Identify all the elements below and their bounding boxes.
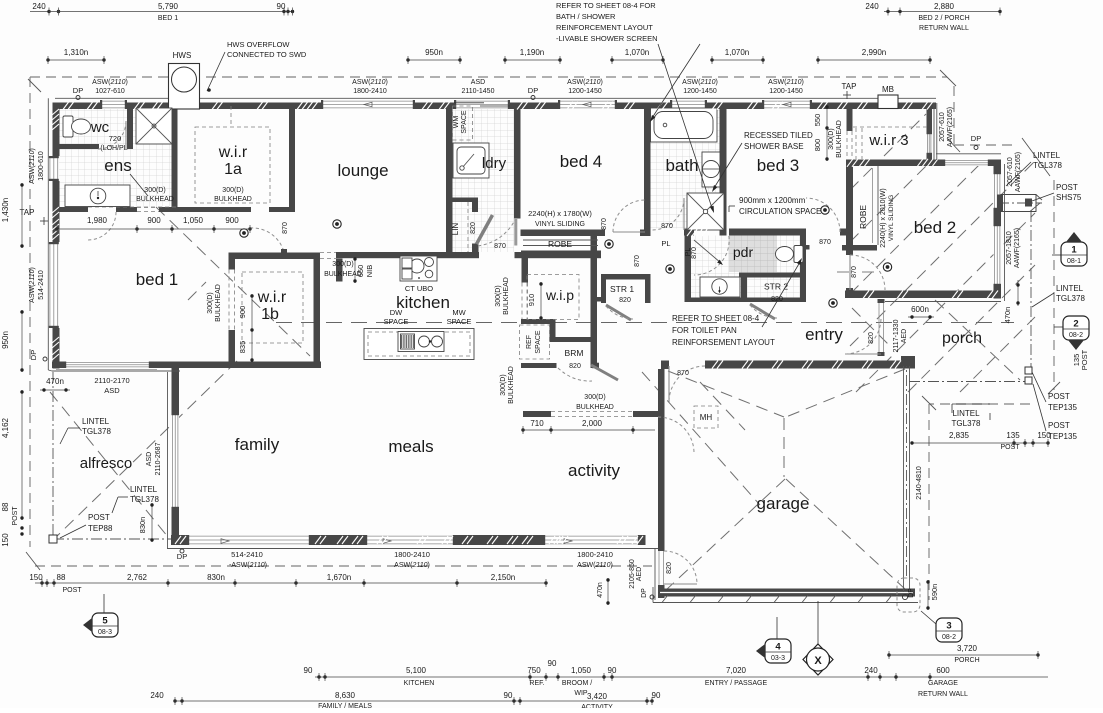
svg-text:AAWF(2165): AAWF(2165) xyxy=(1014,228,1021,268)
svg-text:590n: 590n xyxy=(930,584,939,601)
svg-text:820: 820 xyxy=(666,562,673,574)
svg-text:240: 240 xyxy=(150,691,164,700)
svg-text:REINFORSEMENT LAYOUT: REINFORSEMENT LAYOUT xyxy=(672,338,775,347)
svg-text:w.i.r: w.i.r xyxy=(218,144,248,161)
svg-text:830n: 830n xyxy=(207,573,225,582)
svg-text:LINTEL: LINTEL xyxy=(952,409,980,418)
svg-text:2,000: 2,000 xyxy=(582,419,603,428)
svg-text:LINTEL: LINTEL xyxy=(1056,284,1084,293)
svg-text:1a: 1a xyxy=(224,161,242,178)
svg-text:2,835: 2,835 xyxy=(949,431,970,440)
svg-text:CIRCULATION SPACE: CIRCULATION SPACE xyxy=(739,207,821,216)
svg-text:DP: DP xyxy=(73,86,83,95)
svg-text:820: 820 xyxy=(868,332,875,344)
svg-text:ASD: ASD xyxy=(471,79,485,86)
svg-text:DP: DP xyxy=(528,86,538,95)
svg-text:3: 3 xyxy=(946,621,951,632)
svg-text:300(D): 300(D) xyxy=(144,187,165,194)
svg-text:470n: 470n xyxy=(46,377,64,386)
svg-text:950n: 950n xyxy=(425,48,443,57)
svg-text:2110-2170: 2110-2170 xyxy=(94,376,129,385)
svg-text:2110-1450: 2110-1450 xyxy=(462,88,495,95)
svg-text:BED 2 / PORCH: BED 2 / PORCH xyxy=(918,15,969,22)
svg-text:BATH / SHOWER: BATH / SHOWER xyxy=(556,12,616,21)
svg-text:150: 150 xyxy=(1037,431,1051,440)
svg-text:240: 240 xyxy=(865,2,879,11)
svg-text:POST: POST xyxy=(88,513,110,522)
svg-text:wc: wc xyxy=(90,119,110,136)
svg-text:porch: porch xyxy=(942,330,982,347)
svg-text:PL: PL xyxy=(661,239,670,248)
svg-text:POST: POST xyxy=(12,506,19,526)
svg-text:HWS: HWS xyxy=(173,51,192,60)
svg-text:600n: 600n xyxy=(911,305,929,314)
svg-text:RECESSED TILED: RECESSED TILED xyxy=(744,131,813,140)
svg-text:4,162: 4,162 xyxy=(1,417,10,438)
svg-text:900: 900 xyxy=(147,216,161,225)
svg-text:ASW(2110): ASW(2110) xyxy=(394,562,430,569)
svg-text:2110-2687: 2110-2687 xyxy=(155,442,162,475)
svg-text:2,880: 2,880 xyxy=(934,2,955,11)
svg-text:1027-610: 1027-610 xyxy=(95,88,125,95)
svg-text:TAP: TAP xyxy=(842,82,857,91)
svg-text:w.i.r: w.i.r xyxy=(257,289,287,306)
svg-text:TEP135: TEP135 xyxy=(1048,403,1077,412)
svg-text:AED: AED xyxy=(636,567,643,581)
svg-text:ASD: ASD xyxy=(104,386,120,395)
svg-text:2057-610: 2057-610 xyxy=(1007,157,1014,187)
svg-text:88: 88 xyxy=(1,502,10,511)
svg-text:SPACE: SPACE xyxy=(384,317,409,326)
svg-text:900: 900 xyxy=(225,216,239,225)
svg-text:ROBE: ROBE xyxy=(858,205,868,229)
svg-text:LIN: LIN xyxy=(451,223,460,236)
svg-text:8,630: 8,630 xyxy=(335,691,356,700)
svg-text:ENTRY / PASSAGE: ENTRY / PASSAGE xyxy=(705,680,768,687)
svg-text:1,430n: 1,430n xyxy=(1,198,10,222)
svg-text:3,720: 3,720 xyxy=(957,644,978,653)
svg-text:ACTIVITY: ACTIVITY xyxy=(581,704,613,708)
svg-text:550: 550 xyxy=(813,114,822,127)
svg-text:bed 2: bed 2 xyxy=(914,218,957,237)
svg-text:240: 240 xyxy=(864,666,878,675)
svg-text:820: 820 xyxy=(619,297,631,304)
svg-text:4: 4 xyxy=(775,642,781,653)
svg-text:90: 90 xyxy=(304,666,313,675)
svg-text:ASW(2110): ASW(2110) xyxy=(29,267,36,303)
svg-text:2: 2 xyxy=(1073,319,1078,330)
svg-text:VINYL SLIDING: VINYL SLIDING xyxy=(535,221,585,228)
svg-text:1,310n: 1,310n xyxy=(64,48,88,57)
svg-text:1800-610: 1800-610 xyxy=(38,151,45,181)
svg-text:MW: MW xyxy=(452,308,466,317)
svg-text:2240(H) x 2010(W): 2240(H) x 2010(W) xyxy=(880,188,887,248)
svg-text:ens: ens xyxy=(104,156,131,175)
svg-text:470n: 470n xyxy=(1003,307,1012,324)
svg-text:PORCH: PORCH xyxy=(954,657,979,664)
svg-text:RETURN WALL: RETURN WALL xyxy=(919,25,969,32)
svg-text:600: 600 xyxy=(936,666,950,675)
svg-text:2,990n: 2,990n xyxy=(862,48,886,57)
svg-text:1: 1 xyxy=(1071,245,1077,256)
svg-text:FAMILY / MEALS: FAMILY / MEALS xyxy=(318,703,372,708)
svg-text:ASW(2110): ASW(2110) xyxy=(567,79,603,86)
svg-text:BULKHEAD: BULKHEAD xyxy=(215,284,222,322)
svg-text:WM: WM xyxy=(453,116,460,129)
svg-text:90: 90 xyxy=(608,666,617,675)
svg-text:BULKHEAD: BULKHEAD xyxy=(214,196,252,203)
svg-text:300(D): 300(D) xyxy=(222,187,243,194)
svg-text:90: 90 xyxy=(548,659,557,668)
svg-text:300(D): 300(D) xyxy=(584,394,605,401)
svg-text:BROOM /: BROOM / xyxy=(562,680,592,687)
svg-text:garage: garage xyxy=(757,494,810,513)
svg-text:710: 710 xyxy=(530,419,544,428)
svg-text:900: 900 xyxy=(238,306,247,319)
svg-text:BULKHEAD: BULKHEAD xyxy=(503,277,510,315)
svg-text:2105-850: 2105-850 xyxy=(629,559,636,589)
svg-text:2057-610: 2057-610 xyxy=(939,112,946,142)
svg-text:GARAGE: GARAGE xyxy=(928,680,958,687)
svg-text:ASD: ASD xyxy=(146,452,153,466)
svg-text:bed 4: bed 4 xyxy=(560,152,603,171)
svg-text:5,100: 5,100 xyxy=(406,666,427,675)
svg-text:1,070n: 1,070n xyxy=(725,48,749,57)
svg-text:08-2: 08-2 xyxy=(942,634,956,641)
svg-text:90: 90 xyxy=(504,691,513,700)
svg-text:08-2: 08-2 xyxy=(1069,332,1083,339)
svg-text:ROBE: ROBE xyxy=(548,239,572,249)
svg-text:FOR TOILET PAN: FOR TOILET PAN xyxy=(672,326,737,335)
svg-text:REFER TO SHEET 08-4 FOR: REFER TO SHEET 08-4 FOR xyxy=(556,1,656,10)
svg-text:ASW(2110): ASW(2110) xyxy=(768,79,804,86)
svg-text:870: 870 xyxy=(691,247,698,259)
svg-text:X: X xyxy=(814,655,822,667)
svg-text:820: 820 xyxy=(470,222,477,234)
svg-text:150: 150 xyxy=(1,533,10,547)
svg-text:w.i.r 3: w.i.r 3 xyxy=(868,132,908,149)
svg-text:BULKHEAD: BULKHEAD xyxy=(508,366,515,404)
svg-text:910: 910 xyxy=(527,294,536,307)
svg-text:3,420: 3,420 xyxy=(587,692,608,701)
svg-text:MH: MH xyxy=(700,413,713,422)
svg-text:BULKHEAD: BULKHEAD xyxy=(324,271,362,278)
svg-text:STR 1: STR 1 xyxy=(610,284,634,294)
svg-text:240: 240 xyxy=(32,2,46,11)
svg-text:AED: AED xyxy=(901,329,908,343)
svg-text:w.i.p: w.i.p xyxy=(545,287,574,303)
svg-text:870: 870 xyxy=(819,239,831,246)
svg-text:ASW(2110): ASW(2110) xyxy=(92,79,128,86)
svg-text:800: 800 xyxy=(813,139,822,152)
svg-text:BULKHEAD: BULKHEAD xyxy=(136,196,174,203)
svg-text:bed 1: bed 1 xyxy=(136,270,179,289)
svg-text:514-2410: 514-2410 xyxy=(38,270,45,300)
svg-text:835: 835 xyxy=(238,341,247,354)
svg-text:NIB: NIB xyxy=(365,265,374,278)
svg-text:2,762: 2,762 xyxy=(127,573,148,582)
svg-text:DP: DP xyxy=(908,588,915,598)
svg-text:lounge: lounge xyxy=(337,161,388,180)
svg-text:RETURN WALL: RETURN WALL xyxy=(918,691,968,698)
svg-text:ASW(2110): ASW(2110) xyxy=(352,79,388,86)
svg-text:88: 88 xyxy=(57,573,66,582)
svg-text:LINTEL: LINTEL xyxy=(1033,151,1061,160)
svg-text:SPACE: SPACE xyxy=(461,110,468,134)
svg-text:DW: DW xyxy=(390,308,403,317)
svg-text:DP: DP xyxy=(971,134,981,143)
svg-text:TGL378: TGL378 xyxy=(82,427,111,436)
svg-text:150: 150 xyxy=(29,573,43,582)
svg-text:SHOWER BASE: SHOWER BASE xyxy=(744,142,804,151)
svg-text:TGL378: TGL378 xyxy=(1033,161,1062,170)
svg-text:2,150n: 2,150n xyxy=(491,573,515,582)
svg-text:870: 870 xyxy=(634,255,641,267)
svg-text:POST: POST xyxy=(1080,349,1089,370)
svg-text:870: 870 xyxy=(601,218,608,230)
svg-text:2117-1330: 2117-1330 xyxy=(893,319,900,352)
svg-text:REF: REF xyxy=(526,335,533,349)
svg-text:900mm x 1200mm: 900mm x 1200mm xyxy=(739,196,806,205)
svg-text:POST: POST xyxy=(1056,183,1078,192)
svg-text:300(D): 300(D) xyxy=(828,128,835,149)
svg-text:REINFORCEMENT LAYOUT: REINFORCEMENT LAYOUT xyxy=(556,23,653,32)
svg-text:BRM: BRM xyxy=(565,348,584,358)
svg-text:820: 820 xyxy=(569,363,581,370)
svg-text:5: 5 xyxy=(102,616,108,627)
svg-text:830n: 830n xyxy=(138,517,147,534)
svg-text:-LIVABLE SHOWER SCREEN: -LIVABLE SHOWER SCREEN xyxy=(556,34,658,43)
svg-text:870: 870 xyxy=(494,243,506,250)
svg-text:bath: bath xyxy=(665,156,698,175)
svg-text:ASW(2110): ASW(2110) xyxy=(682,79,718,86)
svg-text:300(D): 300(D) xyxy=(207,292,214,313)
svg-text:7,020: 7,020 xyxy=(726,666,747,675)
svg-text:HWS OVERFLOW: HWS OVERFLOW xyxy=(227,40,290,49)
svg-text:REFER TO SHEET 08-4: REFER TO SHEET 08-4 xyxy=(672,314,760,323)
svg-text:514-2410: 514-2410 xyxy=(231,550,263,559)
svg-text:POST: POST xyxy=(1048,392,1070,401)
svg-text:pdr: pdr xyxy=(733,244,754,260)
svg-text:300(D): 300(D) xyxy=(332,261,353,268)
svg-text:AAWF(2165): AAWF(2165) xyxy=(1015,152,1022,192)
svg-text:-ASW(2110): -ASW(2110) xyxy=(229,562,267,569)
svg-text:WIP: WIP xyxy=(574,690,588,697)
svg-text:CONNECTED TO SWD: CONNECTED TO SWD xyxy=(227,50,307,59)
svg-text:1800-2410: 1800-2410 xyxy=(577,550,613,559)
svg-text:03-3: 03-3 xyxy=(771,655,785,662)
svg-text:870: 870 xyxy=(661,223,673,230)
svg-text:870: 870 xyxy=(851,266,858,278)
svg-text:2057-1810: 2057-1810 xyxy=(1006,231,1013,265)
svg-text:AAWF(2165): AAWF(2165) xyxy=(947,107,954,147)
svg-text:TGL378: TGL378 xyxy=(1056,294,1085,303)
svg-text:870: 870 xyxy=(282,222,289,234)
svg-text:alfresco: alfresco xyxy=(80,455,133,472)
svg-text:08-1: 08-1 xyxy=(1067,258,1081,265)
svg-text:90: 90 xyxy=(652,691,661,700)
svg-text:STR 2: STR 2 xyxy=(764,282,788,292)
svg-text:BULKHEAD: BULKHEAD xyxy=(836,120,843,158)
svg-text:family: family xyxy=(235,435,280,454)
svg-text:300(D): 300(D) xyxy=(500,374,507,395)
svg-text:REF.: REF. xyxy=(529,680,544,687)
svg-text:POST: POST xyxy=(1000,444,1020,451)
svg-text:1800-2410: 1800-2410 xyxy=(353,88,387,95)
svg-text:KITCHEN: KITCHEN xyxy=(404,680,435,687)
svg-text:DP: DP xyxy=(29,350,38,360)
svg-text:DP: DP xyxy=(641,588,648,598)
svg-text:2140-4810: 2140-4810 xyxy=(916,466,923,500)
svg-text:ASW(2110): ASW(2110) xyxy=(29,148,36,184)
svg-text:870: 870 xyxy=(677,370,689,377)
svg-text:1b: 1b xyxy=(261,306,279,323)
svg-text:TGL378: TGL378 xyxy=(952,419,981,428)
svg-text:300(D): 300(D) xyxy=(495,285,502,306)
svg-text:TEP135: TEP135 xyxy=(1048,432,1077,441)
svg-text:CT UBO: CT UBO xyxy=(405,284,433,293)
svg-text:750: 750 xyxy=(527,666,541,675)
svg-text:90: 90 xyxy=(277,2,286,11)
svg-text:bed 3: bed 3 xyxy=(757,156,800,175)
svg-text:SHS75: SHS75 xyxy=(1056,193,1082,202)
svg-text:135: 135 xyxy=(1006,431,1020,440)
svg-text:5,790: 5,790 xyxy=(158,2,179,11)
svg-text:ASW(2110): ASW(2110) xyxy=(577,562,613,569)
svg-text:720: 720 xyxy=(109,134,122,143)
svg-text:SPACE: SPACE xyxy=(447,317,472,326)
svg-text:2240(H) x 1780(W): 2240(H) x 1780(W) xyxy=(528,209,592,218)
svg-text:POST: POST xyxy=(62,587,82,594)
svg-text:1,050: 1,050 xyxy=(183,216,204,225)
svg-text:1,980: 1,980 xyxy=(87,216,108,225)
svg-text:TEP88: TEP88 xyxy=(88,524,113,533)
svg-text:ldry: ldry xyxy=(482,155,507,172)
svg-text:BULKHEAD: BULKHEAD xyxy=(576,404,614,411)
svg-text:activity: activity xyxy=(568,461,620,480)
svg-text:1,670n: 1,670n xyxy=(327,573,351,582)
svg-text:1800-2410: 1800-2410 xyxy=(394,550,430,559)
svg-text:1,070n: 1,070n xyxy=(625,48,649,57)
svg-text:470n: 470n xyxy=(597,582,604,598)
svg-text:1200-1450: 1200-1450 xyxy=(683,88,717,95)
svg-text:LINTEL: LINTEL xyxy=(130,485,158,494)
svg-text:1,190n: 1,190n xyxy=(520,48,544,57)
svg-text:08-3: 08-3 xyxy=(98,629,112,636)
svg-text:SPACE: SPACE xyxy=(535,330,542,354)
svg-text:TGL378: TGL378 xyxy=(130,495,159,504)
svg-text:POST: POST xyxy=(1048,421,1070,430)
svg-text:950n: 950n xyxy=(1,331,10,349)
svg-text:meals: meals xyxy=(388,437,433,456)
svg-text:1200-1450: 1200-1450 xyxy=(769,88,803,95)
svg-text:entry: entry xyxy=(805,325,843,344)
svg-text:kitchen: kitchen xyxy=(396,293,450,312)
svg-text:(LOH/PL: (LOH/PL xyxy=(100,145,127,152)
svg-text:VINYL SLIDING: VINYL SLIDING xyxy=(888,195,895,241)
svg-text:MB: MB xyxy=(882,85,894,94)
svg-text:1200-1450: 1200-1450 xyxy=(568,88,602,95)
svg-text:LINTEL: LINTEL xyxy=(82,417,110,426)
svg-text:BED 1: BED 1 xyxy=(158,15,178,22)
svg-text:1,050: 1,050 xyxy=(571,666,592,675)
